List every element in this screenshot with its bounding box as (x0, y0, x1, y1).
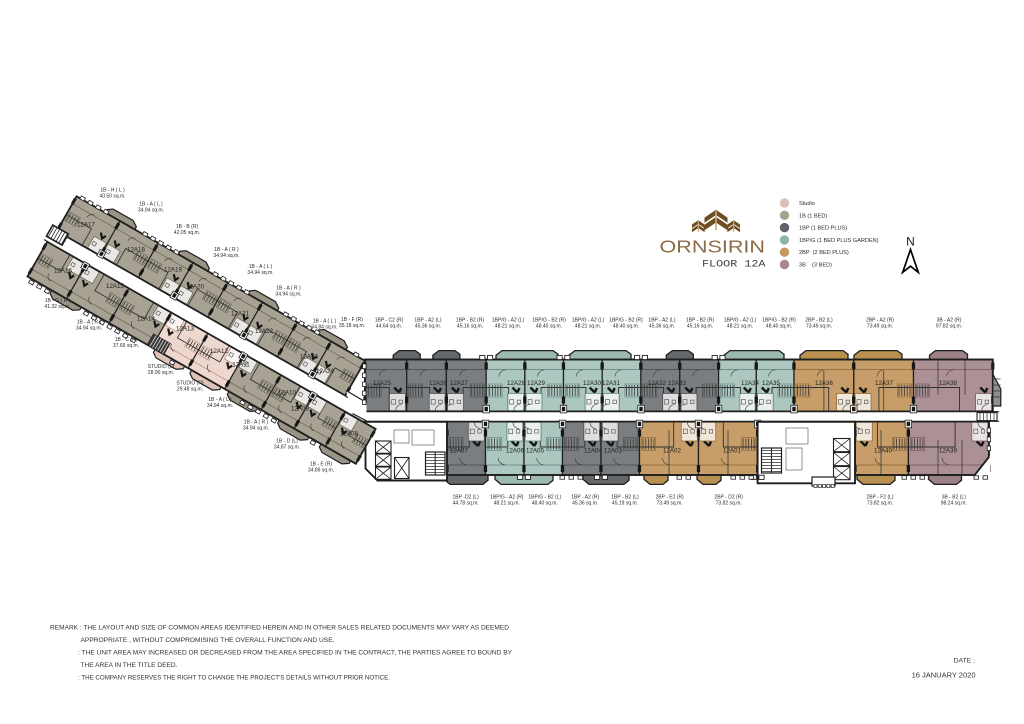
svg-text:12A36: 12A36 (815, 380, 833, 387)
svg-text:3B (3 BED): 3B (3 BED) (799, 263, 832, 269)
svg-text:48.40 sq.m.: 48.40 sq.m. (766, 323, 792, 329)
svg-text:12A19: 12A19 (164, 267, 182, 274)
svg-text:73.82 sq.m.: 73.82 sq.m. (867, 500, 893, 506)
svg-text:12A23: 12A23 (300, 354, 318, 361)
svg-text:98.24 sq.m.: 98.24 sq.m. (941, 500, 967, 506)
svg-text:REMARK : THE LAYOUT AND SIZE O: REMARK : THE LAYOUT AND SIZE OF COMMON A… (50, 625, 509, 632)
svg-text:12A22: 12A22 (255, 328, 273, 335)
svg-text:97.82 sq.m.: 97.82 sq.m. (936, 323, 962, 329)
svg-text:12A38: 12A38 (939, 380, 957, 387)
svg-text:12A24: 12A24 (316, 368, 334, 375)
svg-text:12A03: 12A03 (604, 447, 622, 454)
svg-text:34.84 sq.m.: 34.84 sq.m. (311, 324, 337, 330)
svg-text:1BP (1 BED PLUS): 1BP (1 BED PLUS) (799, 226, 847, 232)
svg-text:45.16 sq.m.: 45.16 sq.m. (457, 323, 483, 329)
svg-text:45.36 sq.m.: 45.36 sq.m. (415, 323, 441, 329)
svg-text:12A12: 12A12 (210, 348, 228, 355)
svg-text:28.90 sq.m.: 28.90 sq.m. (148, 370, 174, 376)
svg-text:12A01: 12A01 (723, 447, 741, 454)
svg-text:: THE COMPANY RESERVES THE RIG: : THE COMPANY RESERVES THE RIGHT TO CHAN… (78, 675, 390, 682)
svg-text:34.94 sq.m.: 34.94 sq.m. (76, 325, 102, 331)
svg-text:12A34: 12A34 (741, 380, 759, 387)
svg-text:34.94 sq.m.: 34.94 sq.m. (247, 270, 273, 276)
svg-text:40.50 sq.m.: 40.50 sq.m. (99, 193, 125, 199)
svg-text:12A35: 12A35 (762, 380, 780, 387)
svg-text:12A32: 12A32 (648, 380, 666, 387)
svg-text:48.40 sq.m.: 48.40 sq.m. (532, 500, 558, 506)
svg-text:ORNSIRIN: ORNSIRIN (660, 236, 766, 256)
svg-text:12A08: 12A08 (340, 431, 358, 438)
svg-text:1B (1 BED): 1B (1 BED) (799, 213, 827, 219)
svg-text:37.69 sq.m.: 37.69 sq.m. (113, 343, 139, 349)
svg-text:12A18: 12A18 (127, 247, 145, 254)
svg-text:16 JANUARY 2020: 16 JANUARY 2020 (912, 671, 976, 680)
svg-text:THE AREA IN THE TITLE DEED.: THE AREA IN THE TITLE DEED. (81, 662, 178, 669)
svg-text:34.94 sq.m.: 34.94 sq.m. (138, 207, 164, 213)
svg-text:48.21 sq.m.: 48.21 sq.m. (494, 500, 520, 506)
svg-text:12A26: 12A26 (429, 380, 447, 387)
svg-text:12A15: 12A15 (106, 283, 124, 290)
svg-text:29.48 sq.m.: 29.48 sq.m. (177, 386, 203, 392)
svg-text:12A25: 12A25 (373, 380, 391, 387)
svg-text:12A06: 12A06 (506, 447, 524, 454)
svg-text:34.87 sq.m.: 34.87 sq.m. (274, 444, 300, 450)
svg-text:34.94 sq.m.: 34.94 sq.m. (243, 425, 269, 431)
svg-text:DATE :: DATE : (954, 658, 976, 665)
svg-text:48.40 sq.m.: 48.40 sq.m. (536, 323, 562, 329)
svg-text:12A04: 12A04 (584, 447, 602, 454)
svg-text:45.19 sq.m.: 45.19 sq.m. (612, 500, 638, 506)
svg-text:73.49 sq.m.: 73.49 sq.m. (867, 323, 893, 329)
svg-text:45.36 sq.m.: 45.36 sq.m. (649, 323, 675, 329)
svg-text:12A14: 12A14 (137, 316, 155, 323)
svg-text:12A10: 12A10 (278, 390, 296, 397)
svg-text:12A17: 12A17 (77, 222, 95, 229)
svg-text:12A02: 12A02 (663, 447, 681, 454)
svg-text:12A28: 12A28 (507, 380, 525, 387)
svg-text:Studio: Studio (799, 201, 815, 207)
svg-text:12A31: 12A31 (602, 380, 620, 387)
svg-text:44.64 sq.m.: 44.64 sq.m. (376, 323, 402, 329)
svg-text:: THE UNIT AREA MAY INCREASED: : THE UNIT AREA MAY INCREASED OR DECREAS… (78, 650, 512, 657)
svg-text:34.94 sq.m.: 34.94 sq.m. (207, 403, 233, 409)
svg-text:42.05 sq.m.: 42.05 sq.m. (174, 230, 200, 236)
svg-text:12A29: 12A29 (527, 380, 545, 387)
svg-text:48.21 sq.m.: 48.21 sq.m. (495, 323, 521, 329)
svg-text:FLOOR 12A: FLOOR 12A (702, 259, 766, 270)
svg-text:12A21: 12A21 (231, 311, 249, 318)
svg-text:1BP/G (1 BED PLUS GARDEN): 1BP/G (1 BED PLUS GARDEN) (799, 238, 879, 244)
svg-text:12A40: 12A40 (874, 447, 892, 454)
svg-text:45.36 sq.m.: 45.36 sq.m. (572, 500, 598, 506)
svg-text:APPROPRIATE , WITHOUT COMPROMI: APPROPRIATE , WITHOUT COMPROMISING THE O… (81, 637, 335, 644)
svg-text:73.49 sq.m.: 73.49 sq.m. (657, 500, 683, 506)
svg-text:12A27: 12A27 (450, 380, 468, 387)
svg-text:34.94 sq.m.: 34.94 sq.m. (213, 253, 239, 259)
svg-text:73.49 sq.m.: 73.49 sq.m. (806, 323, 832, 329)
svg-text:35.18 sq.m.: 35.18 sq.m. (339, 323, 365, 329)
svg-text:73.82 sq.m.: 73.82 sq.m. (716, 500, 742, 506)
svg-text:44.78 sq.m.: 44.78 sq.m. (453, 500, 479, 506)
svg-text:12A16: 12A16 (54, 268, 72, 275)
svg-text:12A20: 12A20 (186, 284, 204, 291)
svg-text:34.94 sq.m.: 34.94 sq.m. (275, 291, 301, 297)
svg-text:48.21 sq.m.: 48.21 sq.m. (575, 323, 601, 329)
svg-text:12A39: 12A39 (939, 447, 957, 454)
svg-text:48.40 sq.m.: 48.40 sq.m. (613, 323, 639, 329)
svg-text:12A07: 12A07 (450, 447, 468, 454)
svg-text:48.21 sq.m.: 48.21 sq.m. (727, 323, 753, 329)
svg-text:N: N (906, 235, 915, 249)
svg-text:12A37: 12A37 (875, 380, 893, 387)
svg-text:12A33: 12A33 (668, 380, 686, 387)
svg-text:34.89 sq.m.: 34.89 sq.m. (308, 467, 334, 473)
svg-text:12A05: 12A05 (526, 447, 544, 454)
svg-text:45.16 sq.m.: 45.16 sq.m. (687, 323, 713, 329)
svg-text:2BP (2 BED PLUS): 2BP (2 BED PLUS) (799, 250, 849, 256)
svg-text:12A11: 12A11 (232, 362, 250, 369)
svg-text:12A13: 12A13 (176, 326, 194, 333)
svg-text:12A09: 12A09 (291, 406, 309, 413)
svg-text:12A30: 12A30 (583, 380, 601, 387)
svg-text:41.32 sq.m.: 41.32 sq.m. (44, 304, 70, 310)
